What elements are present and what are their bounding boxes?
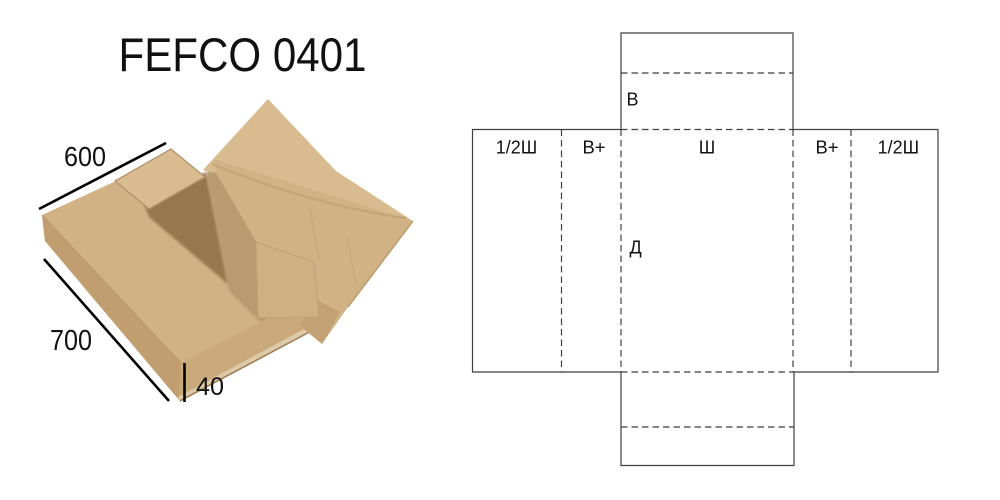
svg-text:В+: В+ xyxy=(816,138,839,158)
svg-text:1/2Ш: 1/2Ш xyxy=(878,138,920,158)
svg-text:700: 700 xyxy=(50,325,92,357)
svg-text:Ш: Ш xyxy=(699,138,716,158)
svg-text:1/2Ш: 1/2Ш xyxy=(496,138,538,158)
svg-text:В: В xyxy=(627,90,639,110)
svg-text:600: 600 xyxy=(64,141,106,172)
svg-text:FEFCO 0401: FEFCO 0401 xyxy=(119,28,367,81)
svg-text:Д: Д xyxy=(630,238,642,258)
svg-text:В+: В+ xyxy=(583,138,606,158)
svg-text:40: 40 xyxy=(196,373,224,401)
